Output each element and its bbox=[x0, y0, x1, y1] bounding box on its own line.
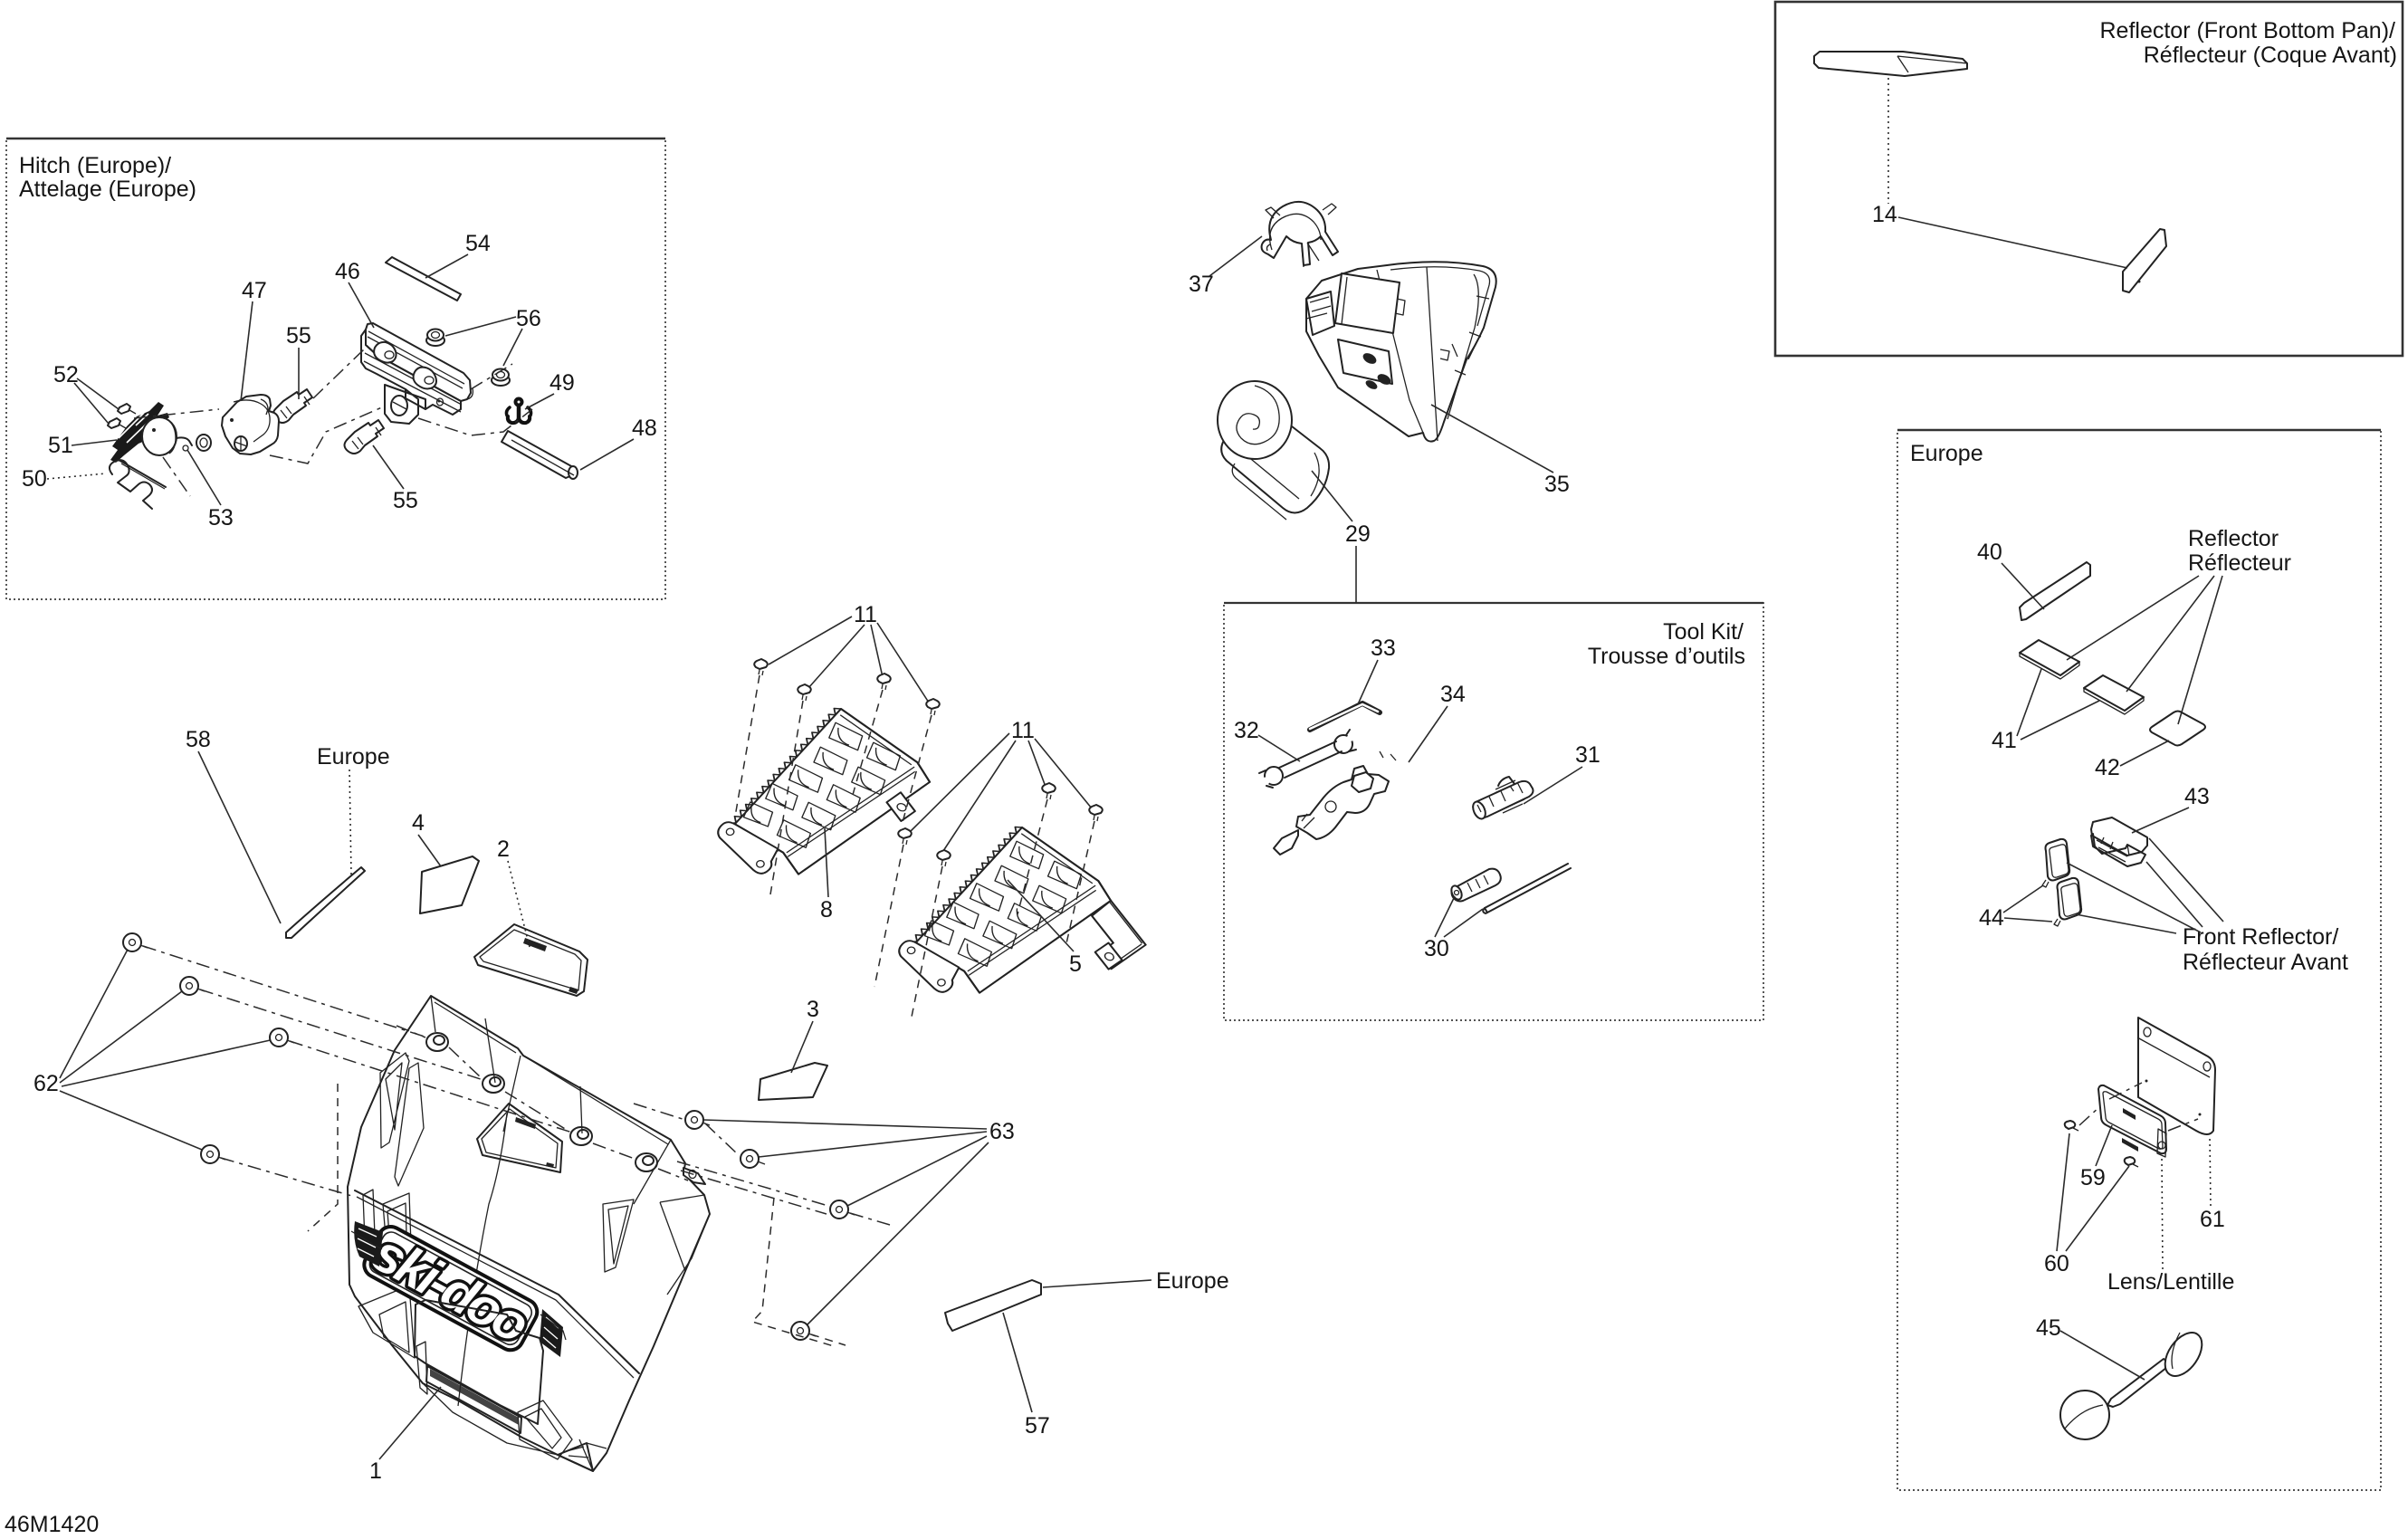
svg-text:Réflecteur: Réflecteur bbox=[2188, 550, 2291, 576]
svg-text:50: 50 bbox=[22, 466, 47, 492]
svg-text:51: 51 bbox=[48, 433, 73, 458]
svg-text:32: 32 bbox=[1234, 718, 1259, 743]
svg-text:Europe: Europe bbox=[1156, 1268, 1229, 1294]
svg-text:31: 31 bbox=[1575, 742, 1601, 768]
svg-text:59: 59 bbox=[2080, 1165, 2106, 1190]
svg-text:Reflector: Reflector bbox=[2188, 526, 2279, 551]
svg-text:Europe: Europe bbox=[1910, 441, 1983, 466]
svg-text:34: 34 bbox=[1440, 682, 1466, 707]
svg-text:1: 1 bbox=[369, 1458, 382, 1484]
svg-text:Tool Kit/: Tool Kit/ bbox=[1663, 619, 1744, 645]
svg-text:42: 42 bbox=[2095, 755, 2120, 780]
svg-text:55: 55 bbox=[393, 488, 418, 513]
svg-text:40: 40 bbox=[1977, 540, 2002, 565]
svg-text:5: 5 bbox=[1069, 951, 1082, 977]
svg-text:43: 43 bbox=[2184, 784, 2210, 809]
svg-text:49: 49 bbox=[549, 370, 575, 396]
svg-text:41: 41 bbox=[1992, 728, 2017, 753]
svg-text:30: 30 bbox=[1424, 936, 1449, 961]
svg-text:11: 11 bbox=[1011, 718, 1035, 743]
svg-text:11: 11 bbox=[854, 602, 877, 627]
svg-text:Réflecteur Avant: Réflecteur Avant bbox=[2183, 950, 2348, 975]
svg-text:Lens/Lentille: Lens/Lentille bbox=[2107, 1269, 2234, 1295]
svg-text:4: 4 bbox=[412, 810, 425, 836]
svg-text:62: 62 bbox=[33, 1071, 59, 1096]
svg-text:Hitch (Europe)/: Hitch (Europe)/ bbox=[19, 153, 171, 178]
svg-text:56: 56 bbox=[516, 306, 541, 331]
svg-text:45: 45 bbox=[2036, 1315, 2061, 1341]
svg-text:63: 63 bbox=[989, 1119, 1015, 1144]
svg-text:57: 57 bbox=[1025, 1413, 1050, 1439]
svg-text:3: 3 bbox=[807, 997, 819, 1022]
svg-text:35: 35 bbox=[1544, 472, 1570, 497]
svg-text:8: 8 bbox=[820, 897, 833, 922]
svg-text:2: 2 bbox=[497, 836, 510, 862]
svg-text:46: 46 bbox=[335, 259, 360, 284]
svg-text:29: 29 bbox=[1345, 521, 1371, 547]
svg-text:44: 44 bbox=[1979, 905, 2004, 931]
svg-text:58: 58 bbox=[186, 727, 211, 752]
svg-text:33: 33 bbox=[1371, 636, 1396, 661]
svg-text:48: 48 bbox=[632, 416, 657, 441]
svg-text:54: 54 bbox=[465, 231, 491, 256]
svg-text:60: 60 bbox=[2044, 1251, 2069, 1276]
svg-text:61: 61 bbox=[2200, 1207, 2225, 1232]
svg-text:53: 53 bbox=[208, 505, 234, 531]
svg-text:Trousse d’outils: Trousse d’outils bbox=[1588, 644, 1745, 669]
svg-text:47: 47 bbox=[242, 278, 267, 303]
svg-text:Attelage (Europe): Attelage (Europe) bbox=[19, 177, 196, 202]
svg-text:46M1420: 46M1420 bbox=[5, 1512, 99, 1537]
svg-text:55: 55 bbox=[286, 323, 311, 349]
svg-text:Reflector (Front Bottom Pan)/: Reflector (Front Bottom Pan)/ bbox=[2099, 18, 2395, 43]
svg-text:Réflecteur (Coque Avant): Réflecteur (Coque Avant) bbox=[2144, 43, 2397, 68]
svg-text:14: 14 bbox=[1872, 202, 1897, 227]
svg-text:Front Reflector/: Front Reflector/ bbox=[2183, 924, 2338, 950]
svg-text:Europe: Europe bbox=[317, 744, 390, 769]
